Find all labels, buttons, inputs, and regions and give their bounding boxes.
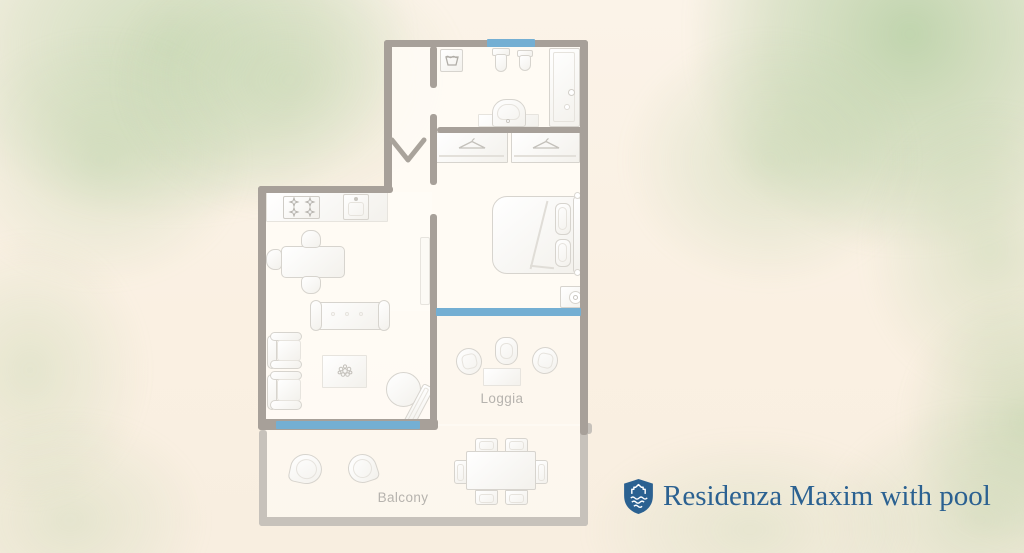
- loggia-label: Loggia: [468, 391, 536, 407]
- wall-right: [580, 40, 588, 435]
- watercolor-blob: [860, 100, 1024, 400]
- wall-left: [258, 186, 266, 430]
- shower-handle: [568, 89, 575, 96]
- coffee-table: [322, 355, 367, 388]
- dining-chair: [266, 249, 282, 270]
- residence-shield-icon: [622, 478, 655, 515]
- window-bathroom: [487, 39, 535, 47]
- dining-chair: [301, 276, 321, 294]
- wall-top: [384, 40, 588, 47]
- shower: [549, 48, 580, 127]
- floor-plan-page: Loggia Balcony Res: [0, 0, 1024, 553]
- stove-burners-icon: [285, 197, 319, 217]
- kitchen-sink: [343, 194, 369, 220]
- laundry-icon: [442, 50, 462, 70]
- watercolor-blob: [0, 410, 210, 553]
- loggia-table: [483, 368, 521, 386]
- sofa-button: [359, 312, 363, 316]
- wardrobe: [511, 132, 580, 163]
- plant-icon: [334, 360, 356, 382]
- door-swing-icon: [388, 137, 428, 164]
- wall-kitchen-top: [258, 186, 393, 193]
- faucet: [506, 119, 510, 123]
- loggia-chair: [495, 337, 518, 365]
- wall-balcony-left: [259, 430, 267, 526]
- washing-machine: [440, 49, 463, 72]
- door-leaf: [420, 237, 430, 305]
- wall-balcony-right: [580, 424, 588, 526]
- sofa-arm: [378, 300, 390, 331]
- balcony-chair: [475, 490, 498, 505]
- brand-lockup: Residenza Maxim with pool: [622, 477, 991, 515]
- balcony-chair: [505, 490, 528, 505]
- brand-title: Residenza Maxim with pool: [663, 477, 991, 515]
- dining-table: [281, 246, 345, 278]
- balcony-chair: [535, 460, 548, 484]
- wall-balcony-bottom: [259, 517, 588, 526]
- stove: [283, 196, 320, 219]
- bathroom-sink: [492, 99, 526, 127]
- door-living-balcony: [276, 421, 420, 429]
- watercolor-blob: [690, 0, 1024, 250]
- toilet: [492, 48, 510, 73]
- window-bedroom-loggia: [436, 308, 581, 316]
- sofa: [313, 302, 387, 330]
- balcony-label: Balcony: [364, 490, 442, 506]
- pillow: [555, 203, 571, 235]
- wall-interior-central: [430, 214, 437, 430]
- sofa-arm: [310, 300, 322, 331]
- watercolor-blob: [0, 230, 150, 510]
- watercolor-blob: [620, 30, 920, 290]
- balcony-table: [466, 451, 536, 490]
- faucet: [354, 197, 358, 201]
- wall-bathroom-left: [430, 46, 437, 88]
- wall-bathroom-bottom: [437, 127, 583, 133]
- sofa-button: [345, 312, 349, 316]
- bidet: [517, 50, 533, 72]
- wall-interior: [430, 114, 437, 185]
- shower-drain: [564, 104, 570, 110]
- pillow: [555, 239, 571, 267]
- sofa-button: [331, 312, 335, 316]
- dining-chair: [301, 230, 321, 248]
- wall-hall-left: [384, 40, 392, 190]
- hanger-icon: [457, 137, 487, 150]
- hanger-icon: [531, 137, 561, 150]
- wardrobe: [436, 132, 508, 163]
- watercolor-blob: [0, 30, 250, 290]
